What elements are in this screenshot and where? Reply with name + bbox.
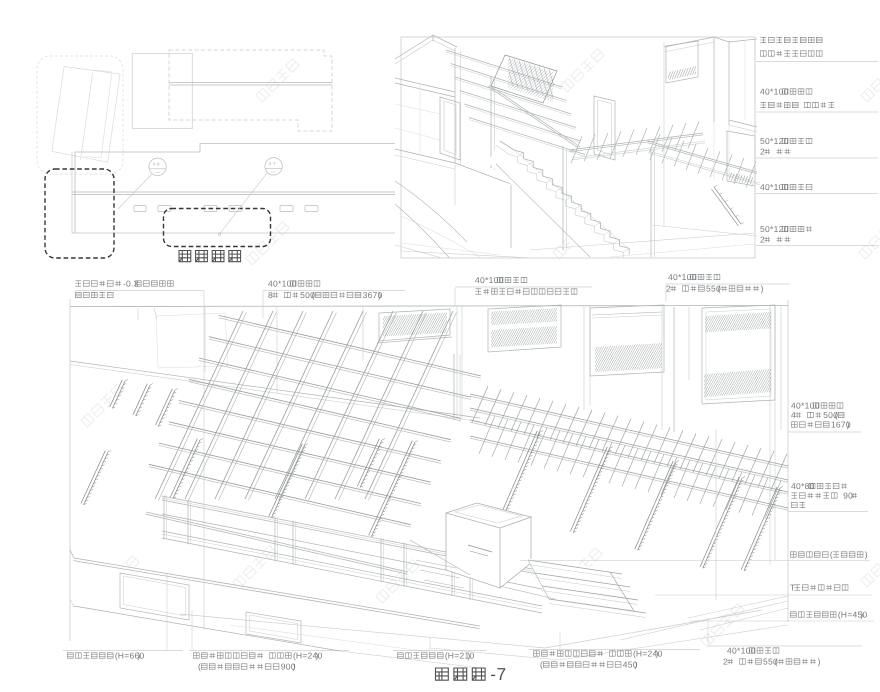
svg-text:40*100: 40*100 — [791, 400, 820, 410]
svg-text:2: 2 — [666, 283, 671, 293]
svg-text:): ) — [635, 659, 638, 669]
svg-text:): ) — [818, 656, 821, 666]
svg-text:40*100: 40*100 — [668, 272, 697, 282]
svg-text:-7: -7 — [490, 664, 507, 684]
svg-text:40*100: 40*100 — [475, 275, 504, 285]
svg-text:X-8: X-8 — [153, 162, 161, 167]
svg-text:50*120: 50*120 — [760, 136, 789, 146]
svg-text:40*100: 40*100 — [760, 86, 789, 96]
svg-text:(: ( — [775, 656, 778, 666]
svg-text:4: 4 — [791, 410, 796, 420]
svg-text:): ) — [656, 648, 659, 658]
svg-text:): ) — [137, 650, 140, 660]
svg-text:50*120: 50*120 — [760, 224, 789, 234]
svg-text:2: 2 — [760, 146, 765, 156]
svg-text:(: ( — [718, 283, 721, 293]
svg-text:): ) — [847, 419, 850, 429]
svg-text:(: ( — [540, 659, 543, 669]
svg-text:40*100: 40*100 — [727, 645, 756, 655]
svg-text:8: 8 — [268, 290, 273, 300]
svg-text:40*80: 40*80 — [791, 481, 815, 491]
svg-text:-0.3: -0.3 — [123, 278, 139, 288]
svg-text:(: ( — [312, 290, 315, 300]
svg-text:2: 2 — [723, 656, 728, 666]
svg-text:): ) — [761, 283, 764, 293]
svg-text:2: 2 — [760, 234, 765, 244]
svg-text:(: ( — [835, 410, 838, 420]
svg-text:X-7: X-7 — [269, 161, 277, 166]
svg-text:(: ( — [198, 661, 201, 671]
svg-text:T: T — [790, 582, 795, 592]
svg-text:40*100: 40*100 — [268, 278, 297, 288]
svg-text:): ) — [467, 650, 470, 660]
svg-text:): ) — [865, 549, 868, 559]
svg-text:): ) — [293, 661, 296, 671]
svg-text:40*100: 40*100 — [760, 182, 789, 192]
svg-text:): ) — [316, 650, 319, 660]
svg-text:(: ( — [830, 549, 833, 559]
svg-text:): ) — [860, 609, 863, 619]
svg-text:): ) — [378, 290, 381, 300]
svg-text:90: 90 — [843, 490, 853, 500]
